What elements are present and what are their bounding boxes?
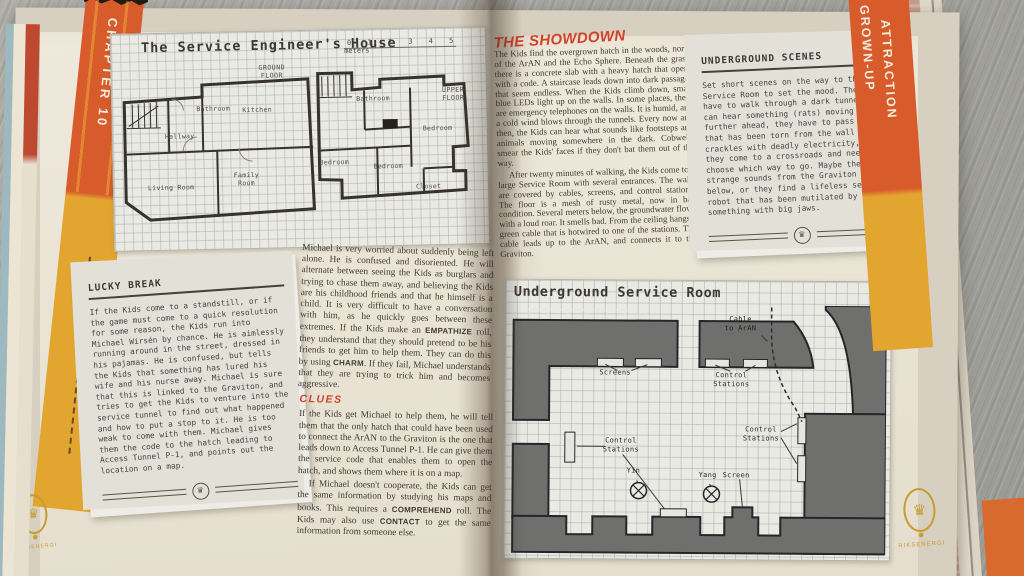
scale-unit: meters [635, 313, 660, 321]
michael-paragraph: Michael is very worried about suddenly b… [298, 243, 495, 399]
room-closet: Closet [416, 182, 441, 191]
showdown-paragraph-1: The Kids find the overgrown hatch in the… [494, 44, 695, 169]
lucky-break-body: If the Kids come to a standstill, or if … [89, 294, 296, 477]
room-bathroom-ground: Bathroom [196, 104, 230, 113]
open-book-photo: CHAPTER 10 The Service Engineer's House … [0, 0, 1024, 576]
divider-line [215, 481, 299, 493]
riksenergi-seal-icon: ♛ [191, 482, 209, 500]
label-control-stations-right: Control Stations [743, 425, 779, 442]
room-hallway: Hallway [165, 132, 195, 141]
clues-paragraph-2: If Michael doesn't cooperate, the Kids c… [297, 479, 492, 542]
room-kitchen: Kitchen [242, 106, 272, 115]
yin-yang-symbols [630, 483, 719, 503]
divider-line [102, 489, 186, 501]
spine-label-grown-up: GROWN-UP [857, 5, 877, 93]
showdown-section: THE SHOWDOWN The Kids find the overgrown… [494, 31, 698, 262]
label-control-stations-left: Control Stations [603, 436, 639, 453]
room-bedroom-right: Bedroom [423, 124, 453, 133]
body-text: Michael is very worried about suddenly b… [298, 243, 495, 397]
service-room-map-panel: Underground Service Room [503, 279, 892, 562]
cover-corner-orange [982, 496, 1024, 576]
ground-floor-label: GROUND FLOOR [258, 63, 285, 80]
scale-numbers: 0 1 2 3 4 5 [524, 309, 631, 321]
riksenergi-emblem-right: ♛ ✹ RIKSENERGI [892, 486, 948, 549]
label-control-stations-top: Control Stations [713, 371, 749, 388]
divider-line [709, 233, 788, 242]
floorplan-panel: The Service Engineer's House 0 1 2 3 4 5… [110, 26, 490, 252]
label-yin: Yin [627, 467, 641, 476]
lucky-break-note: LUCKY BREAK If the Kids come to a stands… [74, 255, 313, 517]
skill-empathize: EMPATHIZE [425, 326, 472, 336]
chimney [383, 119, 398, 128]
skill-comprehend: COMPREHEND [392, 505, 452, 515]
showdown-paragraph-2: After twenty minutes of walking, the Kid… [498, 165, 698, 260]
room-family: Family Room [234, 171, 260, 188]
room-bathroom-upper: Bathroom [356, 94, 390, 103]
service-room-drawing [508, 304, 887, 557]
map-walls [512, 304, 887, 555]
floorplan-drawing [111, 49, 489, 251]
clues-heading: CLUES [299, 394, 342, 406]
room-bedroom-left: Bedroom [319, 158, 349, 167]
torn-edge [844, 0, 913, 1]
service-room-title: Underground Service Room [514, 284, 721, 301]
label-cable-to-aran: Cable to ArAN [725, 315, 757, 332]
map-scale: 0 1 2 3 4 5 meters [524, 312, 661, 321]
riksenergi-seal-icon: ♛ [793, 226, 811, 244]
label-screen: Screen [723, 471, 750, 480]
note-footer-logo: ♛ [102, 475, 299, 506]
clues-section: CLUES If the Kids get Michael to help th… [296, 394, 493, 544]
label-yang: Yang [699, 471, 717, 480]
text-run: Michael is very worried about suddenly b… [300, 243, 495, 336]
label-screens: Screens [599, 368, 631, 377]
floorplan-walls [124, 70, 470, 220]
clues-paragraph-1: If the Kids get Michael to help them, he… [298, 409, 493, 481]
crown-icon: ♛ [902, 487, 937, 533]
skill-charm: CHARM [333, 358, 364, 368]
room-bedroom-middle: Bedroom [374, 162, 404, 171]
upper-floor-label: UPPER FLOOR [442, 86, 464, 102]
room-living: Living Room [148, 183, 195, 192]
skill-contact: CONTACT [380, 517, 420, 527]
spine-label-attraction: ATTRACTION [878, 19, 899, 120]
